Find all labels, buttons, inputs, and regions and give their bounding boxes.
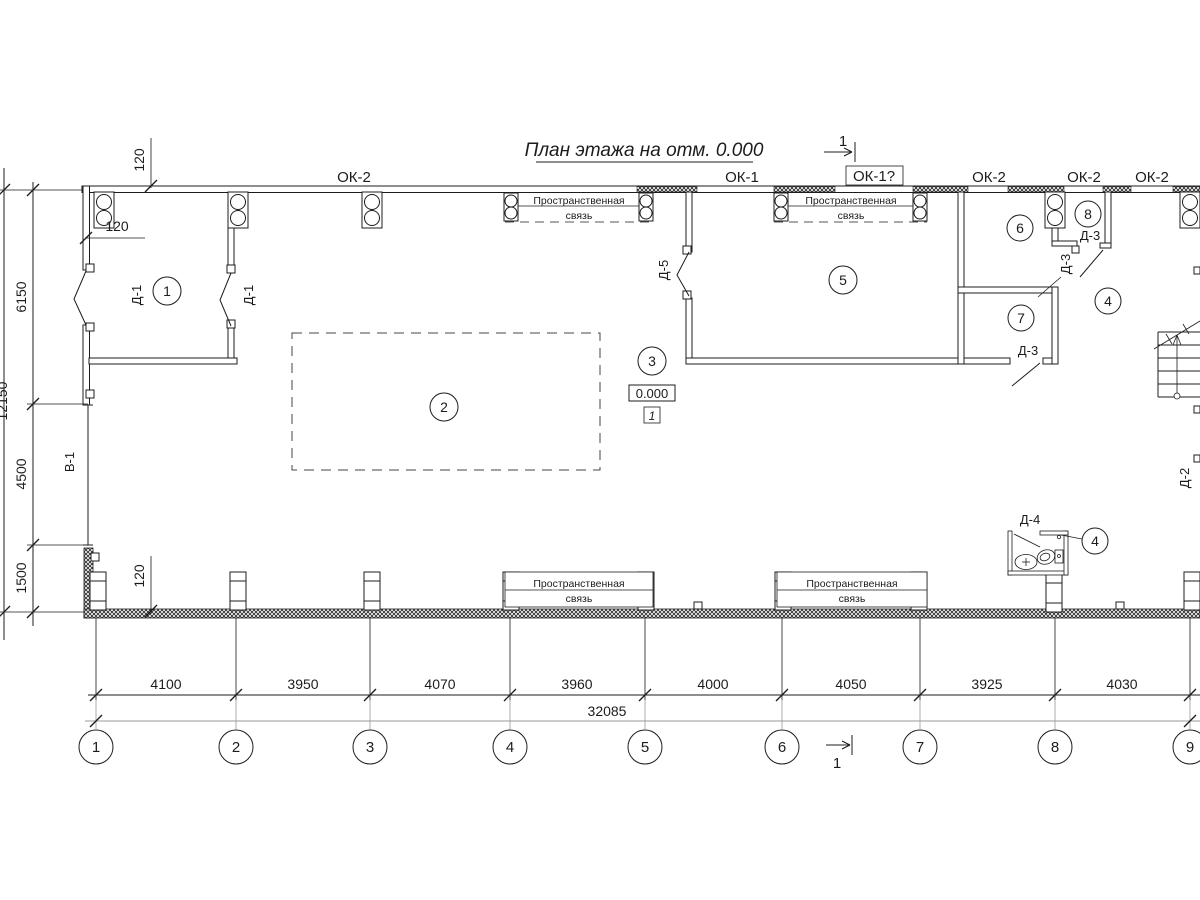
grid-bubbles: 1 2 3 4 5 6 7 8 9: [79, 730, 1200, 764]
room-tags: 1 2 3 4 4 5 6 7 8: [153, 201, 1121, 554]
partition-room8-bottom-left: [1052, 241, 1077, 246]
elevation-mark: 0.000: [629, 385, 675, 401]
room-tag-1: 1: [153, 277, 181, 305]
spatial-brace-bottom-2: Пространственная связь: [777, 572, 927, 607]
column-icon: [362, 192, 382, 228]
column-icon: [90, 572, 106, 610]
dim-bottom: 4100: [150, 676, 181, 692]
room-tag-3: 3: [638, 347, 666, 375]
grid-bubble-8: 8: [1038, 730, 1072, 764]
room-number: 7: [1017, 310, 1025, 326]
door-leaf-d1-right: [220, 273, 231, 326]
door-leaf-d1-left: [74, 271, 86, 325]
door-leaf-d4: [1014, 534, 1040, 547]
door-label-d4: Д-4: [1020, 512, 1040, 527]
wall-stub: [1116, 602, 1124, 609]
brace-label-line1: Пространственная: [533, 578, 624, 590]
svg-text:8: 8: [1051, 739, 1059, 756]
column-icon: [230, 572, 246, 610]
floor-plan-sheet: Пространственная связь Пространственная …: [0, 0, 1200, 900]
door-label-d3: Д-3: [1080, 228, 1100, 243]
room-number: 4: [1104, 293, 1112, 309]
wall-stub-right-edge: [1194, 455, 1200, 462]
wall-stub-right-edge: [1194, 267, 1200, 274]
room-number: 4: [1091, 533, 1099, 549]
section-marker-bottom: 1: [826, 735, 852, 772]
dim-left-total: 12150: [0, 381, 10, 420]
column-icon: [913, 193, 927, 221]
partition-room5-left-lower: [686, 298, 692, 364]
svg-text:7: 7: [916, 739, 924, 756]
room-number: 2: [440, 399, 448, 415]
room-number: 3: [648, 353, 656, 369]
svg-text:3: 3: [366, 739, 374, 756]
svg-text:9: 9: [1186, 739, 1194, 756]
partition-room1-bottom: [89, 358, 237, 364]
section-number: 1: [833, 755, 841, 772]
door-leaf-d5: [677, 252, 689, 296]
column-icon: [364, 572, 380, 610]
spatial-brace-top-1: Пространственная связь: [505, 195, 653, 222]
window-segment: [913, 187, 968, 193]
room-tag-8: 8: [1075, 201, 1101, 227]
svg-text:6: 6: [778, 739, 786, 756]
window-segment: [1103, 187, 1131, 193]
wc-room: [1008, 531, 1068, 575]
room-number: 5: [839, 272, 847, 288]
brace-label-line1: Пространственная: [533, 195, 624, 207]
door-label-d1: Д-1: [129, 285, 144, 305]
room-number: 8: [1084, 206, 1092, 222]
grid-bubble-3: 3: [353, 730, 387, 764]
dim-bottom: 4070: [424, 676, 455, 692]
section-marker-top: 1: [824, 133, 855, 162]
dim-left: 6150: [13, 281, 29, 312]
window-label-ok1-questioned: ОК-1?: [846, 166, 903, 185]
room-tag-7: 7: [1008, 305, 1034, 331]
column-icon: [1045, 192, 1065, 228]
offset-dim-bottom: 120: [131, 556, 157, 617]
brace-label-line2: связь: [839, 593, 866, 605]
window-label-ok2: ОК-2: [1135, 169, 1169, 186]
exterior-wall-left-upper: [83, 186, 90, 270]
grid-bubble-5: 5: [628, 730, 662, 764]
door-leaf-d3-room8: [1080, 250, 1103, 277]
stairs: [1154, 321, 1200, 399]
wall-stub: [86, 264, 94, 272]
grid-system-left: 6150 4500 1500 12150 120 120 120: [0, 138, 157, 640]
column-icon: [504, 193, 518, 221]
window-label-ok2: ОК-2: [1067, 169, 1101, 186]
offset-dim-top: 120: [131, 138, 157, 192]
window-label-ok2: ОК-2: [972, 169, 1006, 186]
svg-text:2: 2: [232, 739, 240, 756]
wall-stub: [683, 246, 691, 254]
svg-text:0.000: 0.000: [636, 386, 669, 401]
brace-label-line1: Пространственная: [806, 578, 897, 590]
window-segment: [1008, 187, 1064, 193]
dim-bottom: 4030: [1106, 676, 1137, 692]
window-segment: [774, 187, 835, 193]
drawing-title: План этажа на отм. 0.000: [525, 140, 764, 161]
window-segment: [637, 187, 697, 193]
svg-text:120: 120: [105, 218, 129, 234]
svg-text:120: 120: [131, 148, 147, 172]
door-label-d3: Д-3: [1058, 254, 1073, 274]
dim-left: 4500: [13, 458, 29, 489]
column-icon: [1046, 574, 1062, 612]
door-label-d5: Д-5: [656, 260, 671, 280]
room-number: 6: [1016, 220, 1024, 236]
sink-icon: [1015, 555, 1037, 570]
spatial-brace-bottom-1: Пространственная связь: [505, 572, 653, 607]
wall-stub: [694, 602, 702, 609]
wall-stub: [227, 320, 235, 328]
column-icon: [1184, 572, 1200, 610]
dim-bottom: 3950: [287, 676, 318, 692]
column-icon: [639, 193, 653, 221]
window-label-ok2: ОК-2: [337, 169, 371, 186]
grid-bubble-7: 7: [903, 730, 937, 764]
walls: [82, 186, 1200, 618]
brace-label-line1: Пространственная: [805, 195, 896, 207]
brace-label-line2: связь: [838, 210, 865, 222]
brace-label-line2: связь: [566, 210, 593, 222]
partition-room6-7: [958, 287, 1058, 293]
grid-bubble-2: 2: [219, 730, 253, 764]
dim-left: 1500: [13, 562, 29, 593]
spatial-brace-top-2: Пространственная связь: [774, 195, 927, 222]
room-tag-2: 2: [430, 393, 458, 421]
detail-mark: 1: [644, 407, 660, 423]
partition-room5-left-upper: [686, 192, 692, 252]
grid-bubble-9: 9: [1173, 730, 1200, 764]
wall-stub: [91, 553, 99, 561]
room-tag-5: 5: [829, 266, 857, 294]
window-segment: [1173, 187, 1200, 193]
svg-text:120: 120: [131, 564, 147, 588]
partition-room8-right: [1105, 192, 1111, 248]
grid-bubble-6: 6: [765, 730, 799, 764]
door-label-d3: Д-3: [1018, 343, 1038, 358]
svg-text:4: 4: [506, 739, 514, 756]
door-label-d2: Д-2: [1177, 468, 1192, 488]
svg-text:1: 1: [649, 409, 656, 423]
room-tag-6: 6: [1007, 215, 1033, 241]
dim-bottom: 3960: [561, 676, 592, 692]
wall-stub: [86, 323, 94, 331]
room-tag-4: 4: [1095, 288, 1121, 314]
dim-bottom-total: 32085: [588, 703, 627, 719]
partition-room5-right: [958, 192, 964, 364]
grid-system-bottom: 4100 3950 4070 3960 4000 4050 3925 4030 …: [79, 618, 1200, 764]
door-leaf-d3-room7: [1012, 363, 1040, 386]
partition-room7-right: [1052, 287, 1058, 364]
wall-stub-right-edge: [1194, 406, 1200, 413]
brace-label-line2: связь: [566, 593, 593, 605]
dim-bottom: 4050: [835, 676, 866, 692]
svg-text:ОК-1?: ОК-1?: [853, 168, 895, 185]
column-icon: [228, 192, 248, 228]
grid-bubble-1: 1: [79, 730, 113, 764]
dim-bottom: 3925: [971, 676, 1002, 692]
floor-plan-drawing: Пространственная связь Пространственная …: [0, 0, 1200, 900]
svg-text:5: 5: [641, 739, 649, 756]
column-icon: [1180, 192, 1200, 228]
wall-stub: [227, 265, 235, 273]
grid-extension-lines: [96, 618, 1190, 729]
room-number: 1: [163, 283, 171, 299]
columns-top: [94, 192, 1200, 228]
partition-room8-bottom-right: [1100, 243, 1111, 248]
wall-stub: [86, 390, 94, 398]
svg-text:1: 1: [92, 739, 100, 756]
door-label-d1: Д-1: [241, 285, 256, 305]
column-icon: [774, 193, 788, 221]
grid-bubble-4: 4: [493, 730, 527, 764]
section-number: 1: [839, 133, 847, 150]
toilet-icon: [1035, 547, 1063, 566]
gate-opening-v1: [83, 405, 93, 545]
dim-bottom: 4000: [697, 676, 728, 692]
gate-label-v1: В-1: [62, 452, 77, 472]
wall-stub: [1072, 246, 1079, 253]
window-label-ok1: ОК-1: [725, 169, 759, 186]
